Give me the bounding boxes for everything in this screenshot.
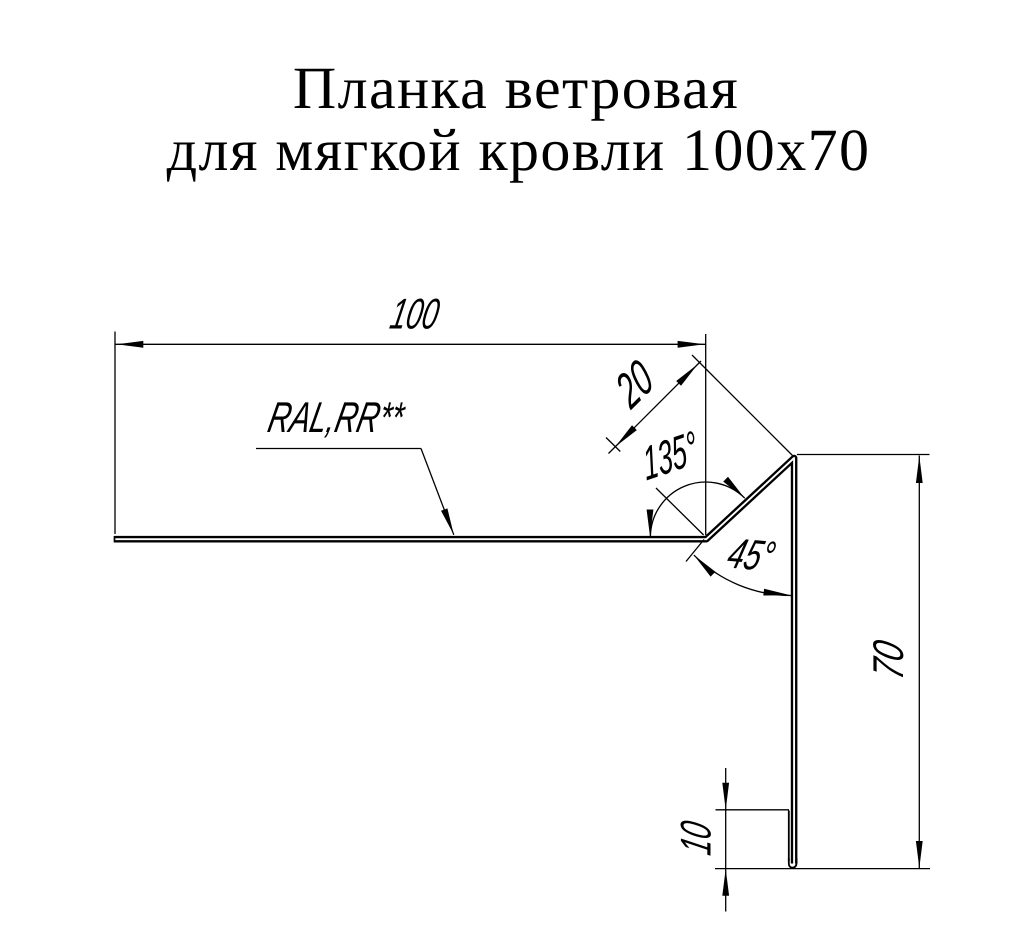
svg-text:RAL,RR**: RAL,RR** [264,394,409,442]
svg-text:100: 100 [386,291,443,339]
svg-text:для мягкой кровли 100х70: для мягкой кровли 100х70 [167,117,871,183]
svg-text:Планка ветровая: Планка ветровая [293,55,739,121]
